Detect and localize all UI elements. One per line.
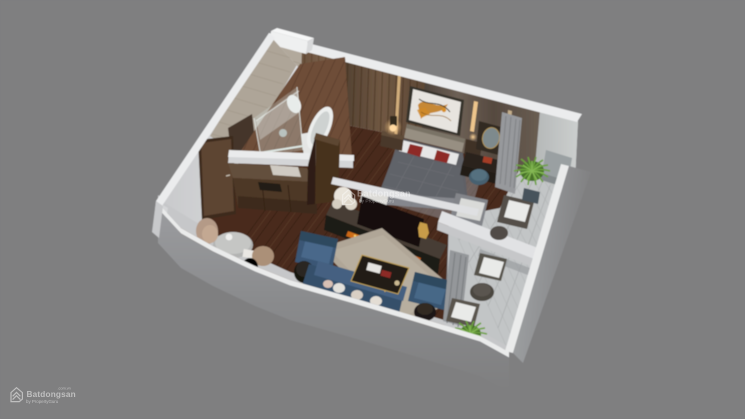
svg-text:Batdongsan: Batdongsan: [27, 390, 76, 399]
svg-text:.com.vn: .com.vn: [58, 387, 71, 391]
svg-text:by PropertyGuru: by PropertyGuru: [26, 399, 59, 404]
svg-text:by PropertyGuru: by PropertyGuru: [359, 198, 395, 204]
svg-text:Batdongsan: Batdongsan: [357, 188, 411, 198]
